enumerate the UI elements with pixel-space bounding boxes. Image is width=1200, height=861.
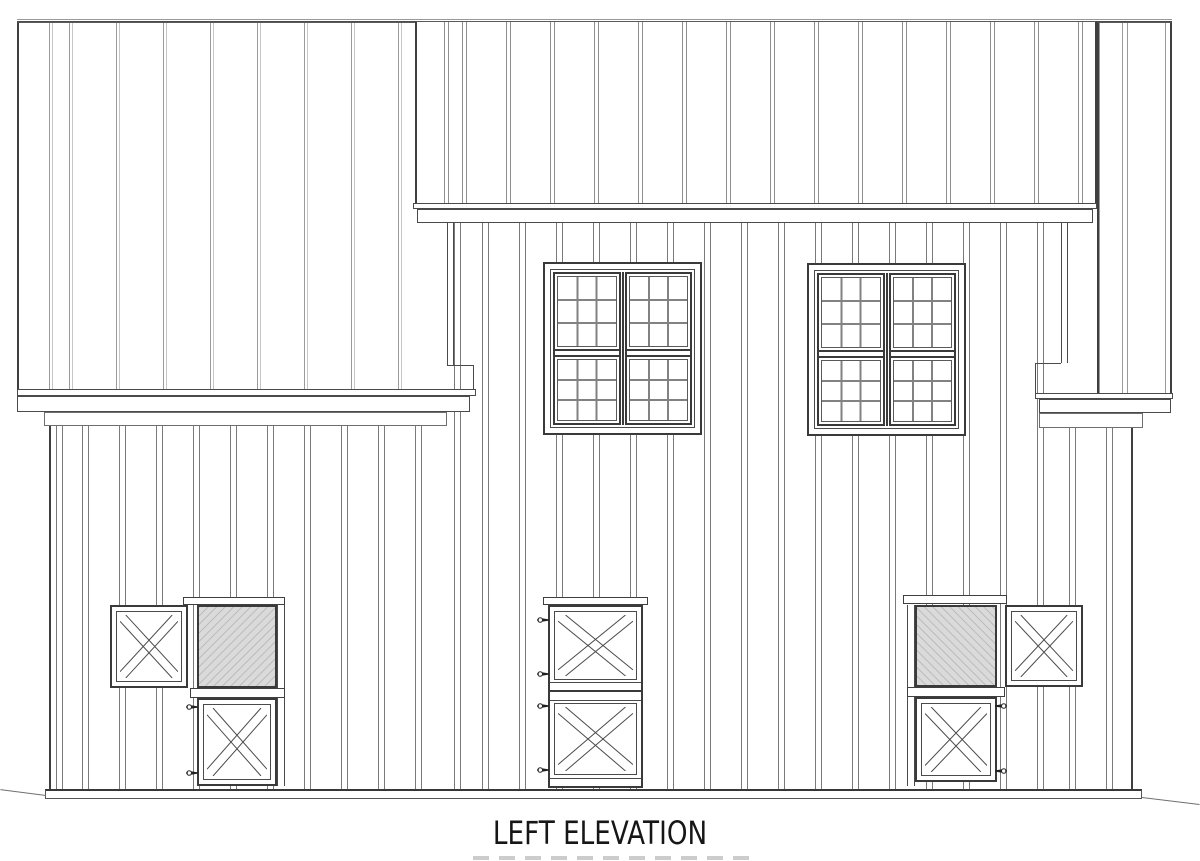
right-door-bottom-leaf <box>915 697 997 782</box>
window-pane-grid <box>821 277 881 348</box>
grade-line-left <box>0 789 46 796</box>
center-gable-wall <box>415 21 1097 203</box>
hinge-icon <box>537 669 550 679</box>
right-gable-wall <box>1097 22 1172 393</box>
right-fascia-end <box>1035 363 1036 393</box>
window-pane-grid <box>893 360 953 422</box>
window-pane-grid <box>629 276 689 347</box>
x-brace <box>207 708 267 776</box>
door-panel-border <box>921 703 991 776</box>
hinge-icon <box>186 702 199 712</box>
left-shed-fascia <box>17 396 470 412</box>
x-brace <box>120 615 178 678</box>
center-door-mid-rail <box>550 682 641 701</box>
window-pane-grid <box>893 277 953 348</box>
left-shed-fascia-top <box>17 389 476 396</box>
hinge-icon <box>537 701 550 711</box>
center-door-bottom-rail <box>550 778 641 786</box>
right-soffit-line <box>1035 363 1061 364</box>
center-dutch-door <box>548 605 643 788</box>
left-loft-window <box>543 262 702 435</box>
left-door-open-top-leaf <box>110 605 188 688</box>
hinge-icon <box>994 701 1007 711</box>
window-mullion <box>886 273 888 426</box>
left-door-mid-shelf <box>190 688 285 698</box>
elevation-drawing: LEFT ELEVATION <box>0 0 1200 861</box>
right-loft-window <box>807 263 966 436</box>
left-door-lintel <box>183 597 285 605</box>
door-panel-border <box>116 611 182 682</box>
x-brace <box>558 707 633 771</box>
door-panel-border <box>1011 611 1077 681</box>
window-meeting-rail <box>819 350 883 358</box>
right-door-lintel <box>903 595 1007 604</box>
window-meeting-rail <box>891 350 955 358</box>
foundation-plinth <box>45 789 1142 799</box>
window-meeting-rail <box>627 349 691 357</box>
center-eave-fascia <box>417 209 1093 223</box>
right-door-open-top-leaf <box>1005 605 1083 687</box>
left-soffit-line <box>447 365 473 366</box>
right-window-sash-right <box>889 273 957 426</box>
window-pane-grid <box>557 276 617 347</box>
left-gable-wall <box>17 22 415 389</box>
center-door-lintel <box>543 597 648 605</box>
x-brace <box>925 707 987 772</box>
right-window-sash-left <box>817 273 885 426</box>
right-window-frame <box>814 270 959 429</box>
left-window-sash-right <box>625 272 693 425</box>
right-door-mid-shelf <box>907 687 1005 697</box>
hinge-icon <box>994 766 1007 776</box>
door-panel-border <box>203 704 271 780</box>
left-window-frame <box>550 269 695 428</box>
right-shed-fascia <box>1039 399 1171 413</box>
hinge-icon <box>537 615 550 625</box>
x-brace <box>558 615 633 676</box>
left-door-open-hatched-opening <box>197 605 277 688</box>
main-wall-right-corner-line <box>1061 223 1062 363</box>
main-wall-right-corner-line2 <box>1067 223 1068 363</box>
hinge-icon <box>537 765 550 775</box>
hinge-icon <box>186 768 199 778</box>
left-shed-lower-band <box>44 412 447 426</box>
main-wall-left-corner-line <box>447 223 448 365</box>
right-shed-lower-band <box>1039 413 1143 428</box>
left-window-sash-left <box>553 272 621 425</box>
clipped-text-artifact <box>473 856 754 860</box>
window-pane-grid <box>629 359 689 421</box>
main-wall-left-corner-line2 <box>453 223 454 365</box>
window-pane-grid <box>557 359 617 421</box>
grade-line-right <box>1142 797 1200 805</box>
left-fascia-end <box>473 365 474 389</box>
drawing-title: LEFT ELEVATION <box>477 814 723 852</box>
door-panel-border <box>554 611 637 680</box>
right-door-open-hatched-opening <box>915 605 997 687</box>
window-meeting-rail <box>555 349 619 357</box>
window-pane-grid <box>821 360 881 422</box>
window-mullion <box>622 272 624 425</box>
door-panel-border <box>554 703 637 775</box>
left-door-bottom-leaf <box>197 698 277 786</box>
x-brace <box>1015 615 1073 677</box>
